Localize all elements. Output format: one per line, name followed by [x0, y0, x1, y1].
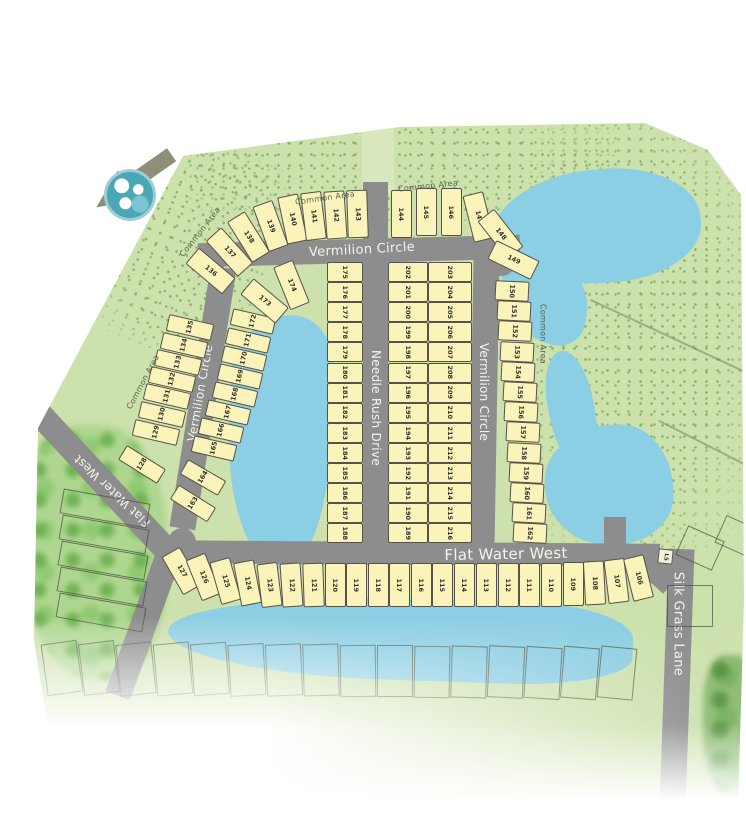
- lot-number: 204: [447, 285, 454, 299]
- unlabeled-lot: [487, 645, 525, 699]
- lot-114[interactable]: 114: [454, 563, 475, 607]
- lot-205[interactable]: 205: [428, 302, 472, 322]
- lot-number: 132: [167, 372, 176, 387]
- lot-number: 168: [230, 387, 239, 402]
- lot-number: 201: [405, 285, 412, 299]
- lot-number: 216: [447, 527, 454, 541]
- street-label-vermilion-circle-right: Vermilion Circle: [477, 343, 491, 441]
- lot-119[interactable]: 119: [346, 563, 367, 607]
- lot-120[interactable]: 120: [325, 563, 346, 607]
- unlabeled-lot: [414, 646, 451, 699]
- lot-number: 136: [203, 264, 218, 278]
- lot-number: 200: [405, 305, 412, 319]
- lot-number: 206: [447, 326, 454, 340]
- lot-200[interactable]: 200: [388, 302, 428, 322]
- lot-number: 129: [151, 425, 160, 440]
- lot-158[interactable]: 158: [506, 442, 541, 464]
- lot-number: 202: [405, 265, 412, 279]
- lot-number: 182: [342, 406, 349, 420]
- subdivision-map: Vermilion Circle Vermilion Circle Vermil…: [0, 0, 746, 813]
- lot-183[interactable]: 183: [327, 423, 363, 443]
- lot-number: 121: [310, 578, 317, 592]
- lot-195[interactable]: 195: [388, 403, 428, 423]
- lot-number: 208: [447, 366, 454, 380]
- lot-number: 173: [257, 294, 272, 308]
- lot-216[interactable]: 216: [428, 523, 472, 543]
- unlabeled-lot: [450, 645, 488, 698]
- lot-number: 146: [448, 205, 455, 219]
- lot-110[interactable]: 110: [541, 563, 562, 607]
- lot-number: 205: [447, 305, 454, 319]
- lot-156[interactable]: 156: [503, 401, 538, 423]
- lot-192[interactable]: 192: [388, 463, 428, 483]
- lot-number: 113: [483, 578, 490, 592]
- lot-161[interactable]: 161: [511, 502, 546, 524]
- lot-189[interactable]: 189: [388, 523, 428, 543]
- lot-109[interactable]: 109: [563, 562, 584, 606]
- lot-157[interactable]: 157: [505, 422, 540, 444]
- lot-number: 183: [342, 426, 349, 440]
- unlabeled-lot: [153, 641, 194, 696]
- lift-station-label: L5: [662, 553, 669, 561]
- lot-108[interactable]: 108: [582, 560, 605, 605]
- street-label-needle-rush-drive: Needle Rush Drive: [369, 350, 383, 466]
- lot-number: 191: [405, 486, 412, 500]
- lot-number: 126: [197, 569, 208, 584]
- unlabeled-lot: [377, 645, 413, 697]
- lot-182[interactable]: 182: [327, 403, 363, 423]
- lot-178[interactable]: 178: [327, 322, 363, 342]
- lot-number: 145: [423, 205, 430, 219]
- lot-number: 138: [242, 230, 255, 245]
- lot-number: 112: [505, 578, 512, 592]
- lot-194[interactable]: 194: [388, 423, 428, 443]
- lot-203[interactable]: 203: [428, 262, 472, 282]
- lot-number: 213: [447, 466, 454, 480]
- lot-number: 203: [447, 265, 454, 279]
- lot-155[interactable]: 155: [502, 381, 537, 403]
- lot-number: 193: [405, 446, 412, 460]
- lot-number: 184: [342, 446, 349, 460]
- lot-number: 186: [342, 486, 349, 500]
- lot-144[interactable]: 144: [391, 190, 412, 238]
- lot-number: 117: [396, 578, 403, 592]
- lot-number: 196: [405, 386, 412, 400]
- lot-number: 187: [342, 506, 349, 520]
- lot-number: 160: [523, 486, 530, 500]
- lot-214[interactable]: 214: [428, 483, 472, 503]
- lot-187[interactable]: 187: [327, 503, 363, 523]
- lot-112[interactable]: 112: [498, 563, 519, 607]
- lot-number: 108: [590, 576, 597, 590]
- lot-153[interactable]: 153: [499, 341, 534, 363]
- lot-number: 185: [342, 466, 349, 480]
- unlabeled-lot: [597, 645, 638, 700]
- lot-number: 151: [510, 304, 517, 318]
- lot-number: 198: [405, 346, 412, 360]
- lot-number: 149: [505, 254, 520, 266]
- lot-number: 131: [162, 389, 171, 404]
- lot-154[interactable]: 154: [500, 361, 535, 383]
- lot-number: 165: [209, 441, 218, 456]
- lot-number: 177: [342, 305, 349, 319]
- lot-number: 150: [508, 284, 515, 298]
- lot-213[interactable]: 213: [428, 463, 472, 483]
- lot-193[interactable]: 193: [388, 443, 428, 463]
- lot-122[interactable]: 122: [279, 562, 303, 607]
- lot-number: 106: [633, 571, 643, 586]
- lot-number: 125: [220, 574, 230, 589]
- lot-number: 189: [405, 527, 412, 541]
- lot-116[interactable]: 116: [411, 563, 432, 607]
- lot-188[interactable]: 188: [327, 523, 363, 543]
- lot-184[interactable]: 184: [327, 443, 363, 463]
- lot-number: 120: [332, 578, 339, 592]
- lot-201[interactable]: 201: [388, 282, 428, 302]
- lot-number: 143: [354, 207, 361, 221]
- lot-159[interactable]: 159: [508, 462, 543, 484]
- lot-117[interactable]: 117: [389, 563, 410, 607]
- lot-number: 195: [405, 406, 412, 420]
- common-area-label: Common Area: [539, 304, 548, 364]
- lot-number: 164: [197, 469, 209, 484]
- lot-211[interactable]: 211: [428, 423, 472, 443]
- lot-176[interactable]: 176: [327, 282, 363, 302]
- lot-145[interactable]: 145: [416, 188, 437, 236]
- lot-number: 215: [447, 506, 454, 520]
- unlabeled-lot: [523, 646, 562, 700]
- lot-212[interactable]: 212: [428, 443, 472, 463]
- lot-202[interactable]: 202: [388, 262, 428, 282]
- lot-number: 178: [342, 326, 349, 340]
- lot-number: 190: [405, 506, 412, 520]
- lot-number: 142: [331, 208, 338, 222]
- lot-number: 209: [447, 386, 454, 400]
- lot-number: 128: [136, 457, 149, 472]
- lot-179[interactable]: 179: [327, 342, 363, 362]
- lot-215[interactable]: 215: [428, 503, 472, 523]
- lot-160[interactable]: 160: [509, 482, 544, 504]
- lot-177[interactable]: 177: [327, 302, 363, 322]
- lot-number: 118: [375, 578, 382, 592]
- lot-number: 212: [447, 446, 454, 460]
- lot-number: 170: [239, 351, 248, 366]
- lot-number: 194: [405, 426, 412, 440]
- lot-196[interactable]: 196: [388, 383, 428, 403]
- lot-191[interactable]: 191: [388, 483, 428, 503]
- adjacent-lot: [667, 585, 713, 627]
- lot-number: 134: [179, 338, 188, 353]
- lot-number: 199: [405, 326, 412, 340]
- lot-121[interactable]: 121: [302, 563, 325, 608]
- lot-208[interactable]: 208: [428, 363, 472, 383]
- lot-111[interactable]: 111: [519, 563, 540, 607]
- lot-number: 111: [526, 578, 533, 592]
- lot-number: 130: [157, 407, 166, 422]
- lot-number: 124: [243, 576, 252, 591]
- parcel-boundary: Vermilion Circle Vermilion Circle Vermil…: [0, 0, 746, 813]
- lot-190[interactable]: 190: [388, 503, 428, 523]
- lot-number: 211: [447, 426, 454, 440]
- lot-number: 163: [187, 496, 200, 511]
- lot-number: 174: [285, 277, 296, 292]
- lot-number: 115: [439, 578, 446, 592]
- unlabeled-lot: [41, 640, 84, 697]
- lot-number: 148: [493, 227, 506, 242]
- lot-number: 133: [173, 355, 182, 370]
- unlabeled-lot: [115, 641, 156, 697]
- lot-186[interactable]: 186: [327, 483, 363, 503]
- lot-number: 167: [223, 405, 232, 420]
- lot-number: 166: [216, 423, 225, 438]
- lot-number: 192: [405, 466, 412, 480]
- compass: [86, 155, 196, 245]
- lot-number: 159: [522, 466, 529, 480]
- unlabeled-lot: [227, 643, 266, 697]
- lot-198[interactable]: 198: [388, 342, 428, 362]
- lot-number: 154: [514, 365, 521, 379]
- lot-210[interactable]: 210: [428, 403, 472, 423]
- lot-number: 157: [519, 425, 526, 439]
- lot-181[interactable]: 181: [327, 383, 363, 403]
- lot-197[interactable]: 197: [388, 363, 428, 383]
- unlabeled-lot: [190, 642, 230, 697]
- lot-number: 175: [342, 265, 349, 279]
- road-stub-north: [604, 517, 626, 549]
- unlabeled-lot: [560, 646, 600, 701]
- lot-206[interactable]: 206: [428, 322, 472, 342]
- lot-207[interactable]: 207: [428, 342, 472, 362]
- lot-185[interactable]: 185: [327, 463, 363, 483]
- lot-146[interactable]: 146: [441, 188, 462, 236]
- lot-number: 116: [418, 578, 425, 592]
- lot-180[interactable]: 180: [327, 363, 363, 383]
- lot-number: 114: [461, 578, 468, 592]
- lot-152[interactable]: 152: [497, 321, 532, 343]
- lot-number: 180: [342, 366, 349, 380]
- lot-number: 144: [398, 207, 405, 221]
- lot-number: 210: [447, 406, 454, 420]
- lot-number: 188: [342, 527, 349, 541]
- lot-150[interactable]: 150: [494, 280, 529, 302]
- lot-number: 107: [612, 574, 620, 588]
- lot-162[interactable]: 162: [512, 523, 547, 545]
- lot-number: 139: [265, 219, 276, 234]
- lot-number: 214: [447, 486, 454, 500]
- lot-number: 181: [342, 386, 349, 400]
- unlabeled-lot: [78, 640, 120, 696]
- lot-number: 158: [520, 446, 527, 460]
- lot-175[interactable]: 175: [327, 262, 363, 282]
- lot-number: 137: [222, 245, 236, 259]
- lot-number: 179: [342, 346, 349, 360]
- unlabeled-lot: [302, 643, 340, 696]
- lot-204[interactable]: 204: [428, 282, 472, 302]
- unlabeled-lot: [340, 645, 377, 697]
- lot-number: 127: [175, 563, 187, 578]
- lot-number: 135: [185, 320, 194, 335]
- lot-number: 156: [517, 405, 524, 419]
- lot-number: 123: [265, 578, 273, 592]
- lot-number: 207: [447, 346, 454, 360]
- lot-number: 119: [353, 578, 360, 592]
- lot-number: 153: [513, 345, 520, 359]
- globe-icon: [104, 169, 156, 221]
- lot-199[interactable]: 199: [388, 322, 428, 342]
- unlabeled-lot: [265, 643, 303, 697]
- lot-number: 169: [235, 369, 244, 384]
- lift-station-lot[interactable]: L5: [657, 548, 673, 564]
- lot-209[interactable]: 209: [428, 383, 472, 403]
- lot-113[interactable]: 113: [476, 563, 497, 607]
- street-label-flat-water-west: Flat Water West: [444, 544, 567, 564]
- lot-number: 155: [516, 385, 523, 399]
- lot-number: 122: [287, 578, 294, 592]
- lot-number: 110: [548, 578, 555, 592]
- lot-number: 197: [405, 366, 412, 380]
- lot-number: 176: [342, 285, 349, 299]
- lot-number: 140: [287, 212, 296, 227]
- lot-115[interactable]: 115: [432, 563, 453, 607]
- lot-number: 172: [248, 314, 257, 329]
- lot-number: 162: [526, 526, 533, 540]
- lot-118[interactable]: 118: [368, 563, 389, 607]
- lot-number: 109: [570, 577, 577, 591]
- lot-number: 141: [309, 209, 317, 223]
- lot-number: 152: [511, 324, 518, 338]
- lot-number: 161: [525, 506, 532, 520]
- lot-number: 171: [243, 333, 252, 348]
- lot-151[interactable]: 151: [496, 300, 531, 322]
